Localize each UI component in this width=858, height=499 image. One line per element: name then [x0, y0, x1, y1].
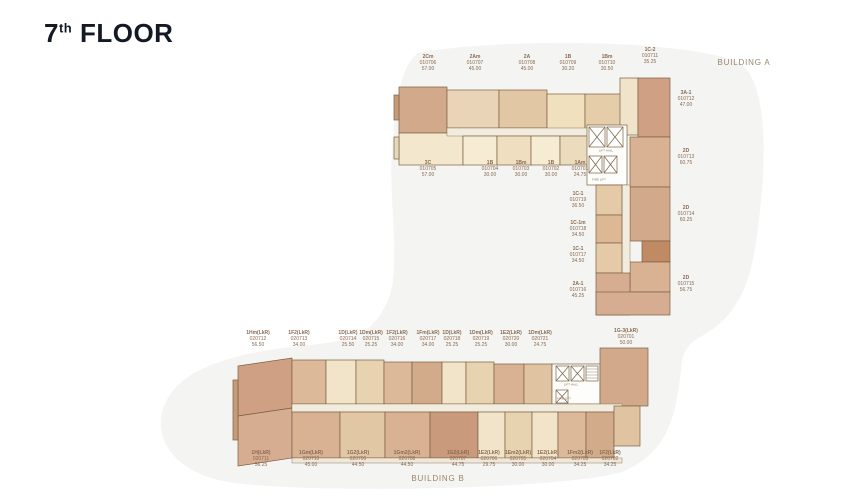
lift-core-b [552, 364, 600, 404]
lift-core-a [587, 125, 627, 185]
building-b-plan [233, 348, 648, 466]
floor-plan-page: 7th FLOOR [0, 0, 858, 499]
floor-plan-drawing [0, 0, 858, 499]
